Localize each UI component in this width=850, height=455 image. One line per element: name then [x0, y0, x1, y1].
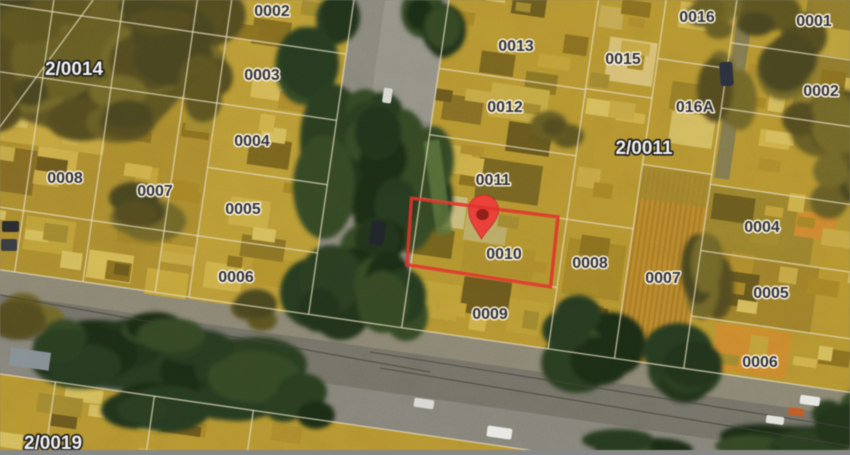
svg-text:0005: 0005: [753, 285, 789, 302]
svg-text:0009: 0009: [472, 306, 508, 323]
svg-text:0007: 0007: [645, 270, 681, 287]
svg-text:0002: 0002: [254, 3, 290, 20]
svg-text:016A: 016A: [676, 99, 715, 116]
svg-text:0008: 0008: [47, 170, 83, 187]
svg-text:0012: 0012: [487, 99, 523, 116]
svg-text:2/0011: 2/0011: [615, 138, 672, 159]
svg-text:2/0014: 2/0014: [45, 59, 104, 80]
svg-text:2/0019: 2/0019: [24, 433, 82, 450]
svg-text:0010: 0010: [486, 246, 522, 263]
svg-text:0002: 0002: [803, 83, 839, 100]
svg-text:0015: 0015: [605, 51, 641, 68]
svg-text:0006: 0006: [218, 269, 254, 286]
svg-text:0005: 0005: [225, 201, 261, 218]
svg-text:0007: 0007: [137, 183, 173, 200]
svg-text:0008: 0008: [572, 255, 608, 272]
svg-text:0001: 0001: [796, 13, 832, 30]
svg-text:0016: 0016: [679, 9, 715, 26]
svg-text:0004: 0004: [744, 219, 780, 236]
svg-text:0013: 0013: [498, 38, 534, 55]
svg-text:0011: 0011: [476, 172, 511, 189]
svg-text:0006: 0006: [742, 354, 778, 371]
svg-text:0003: 0003: [244, 67, 280, 84]
svg-text:0004: 0004: [234, 133, 270, 150]
